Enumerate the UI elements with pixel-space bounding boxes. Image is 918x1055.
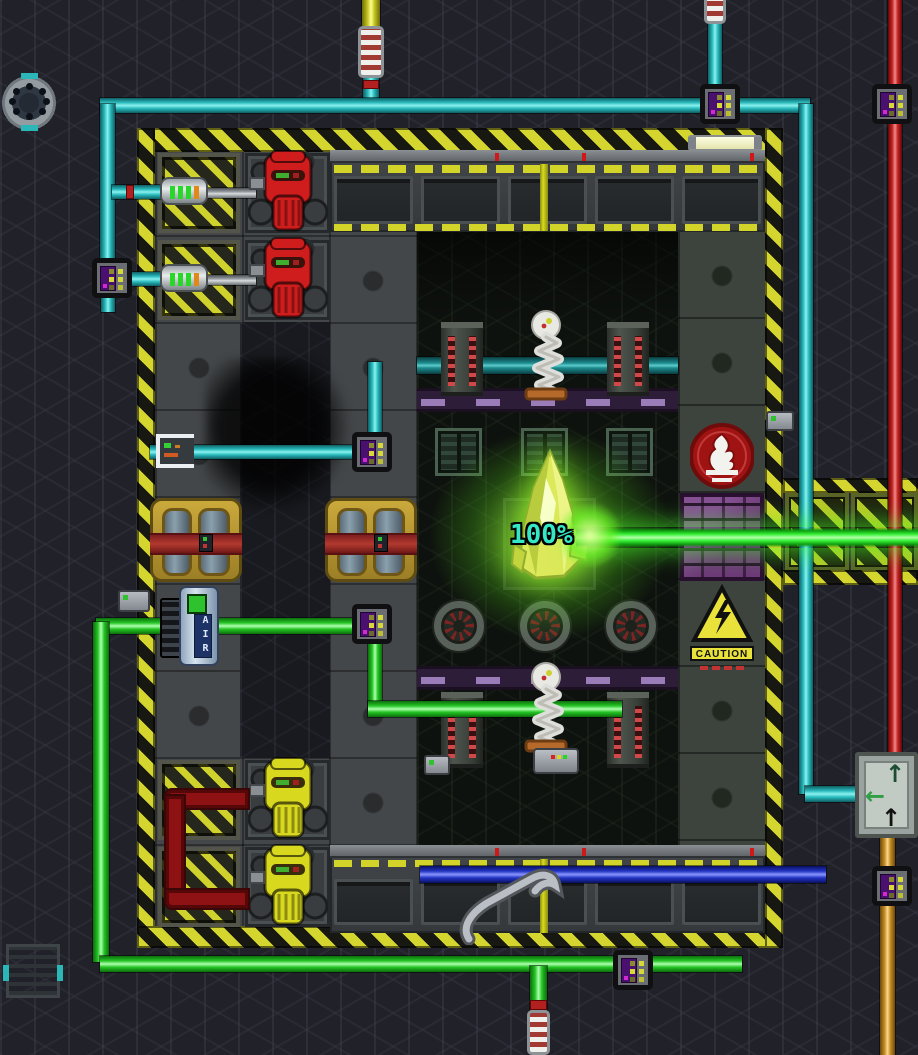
floor-grille[interactable]: [6, 944, 60, 998]
gas-injector[interactable]: [156, 434, 194, 468]
flame-hazard-sign: [690, 422, 754, 496]
wall-trim: [330, 150, 765, 163]
inline-gas-filter[interactable]: [160, 264, 208, 292]
pipe-cyan[interactable]: [101, 296, 115, 312]
pipe-dark-red[interactable]: [166, 796, 184, 902]
wall-light-red: [582, 153, 586, 161]
wall-light-red: [582, 848, 586, 856]
caution-sign-subtext: [700, 666, 744, 670]
gas-meter[interactable]: [872, 84, 912, 124]
wall-light-red: [495, 153, 499, 161]
pipe-dark-red[interactable]: [166, 890, 248, 908]
chamber-wall-top: [330, 150, 765, 232]
wall-panel: [682, 879, 761, 925]
crowbar[interactable]: [455, 855, 565, 945]
gas-meter[interactable]: [613, 950, 653, 990]
portable-pump-yellow[interactable]: [248, 844, 328, 928]
grounding-rod[interactable]: [518, 310, 574, 402]
tesla-coil[interactable]: [607, 322, 649, 396]
space-floor: CAUTION 100%: [0, 0, 918, 1055]
wall-light-red: [750, 153, 754, 161]
canister-label: AIR: [194, 614, 212, 658]
wall-light-red: [750, 848, 754, 856]
caution-sign-label: CAUTION: [690, 646, 754, 661]
pipe-connector[interactable]: [704, 0, 726, 24]
arrow-up-icon: ↑: [881, 806, 901, 830]
wall-panel: [334, 176, 413, 224]
grounding-rod[interactable]: [518, 662, 574, 754]
wall-panel: [682, 176, 761, 224]
wall-light-fixture: [688, 135, 762, 151]
gas-meter[interactable]: [872, 866, 912, 906]
circular-vent[interactable]: [2, 74, 56, 132]
pipe-connector[interactable]: [358, 26, 384, 78]
canister-light: [187, 594, 207, 614]
teg-circulator[interactable]: [150, 498, 242, 582]
status-lights: [551, 755, 555, 759]
pipe-cyan-branch[interactable]: [130, 272, 160, 286]
wall-panel: [595, 879, 674, 925]
pipe-cyan[interactable]: [368, 362, 382, 436]
pipe-valve-band: [530, 1000, 547, 1010]
gas-pipe-green-chamber[interactable]: [368, 701, 622, 717]
dropped-tool[interactable]: [424, 755, 450, 775]
dropped-tool[interactable]: [766, 411, 794, 431]
wall-connector-device[interactable]: [118, 590, 150, 612]
pipe-green-drop[interactable]: [93, 622, 109, 962]
gas-meter[interactable]: [352, 604, 392, 644]
pipe-cyan-right[interactable]: [799, 104, 813, 794]
portable-scrubber-red[interactable]: [248, 237, 328, 321]
circulator-band: [325, 533, 417, 555]
wall-panel: [334, 879, 413, 925]
portable-scrubber-red[interactable]: [248, 150, 328, 234]
floor-shadow: [205, 358, 350, 513]
air-canister[interactable]: AIR: [179, 586, 219, 666]
hazard-band-top: [137, 128, 783, 152]
tesla-coil[interactable]: [441, 322, 483, 396]
pipe-valve-band: [126, 185, 134, 199]
pipe-cyan[interactable]: [708, 20, 722, 92]
gas-pipe-green-riser[interactable]: [368, 642, 382, 710]
electrical-caution-sign: [688, 584, 756, 646]
pipe-valve-band: [363, 80, 379, 89]
teg-circulator[interactable]: [325, 498, 417, 582]
arrow-up-icon: ↑: [885, 762, 905, 786]
pipe-junction-sign[interactable]: ↑ ← ↑: [855, 752, 918, 838]
gas-meter[interactable]: [92, 258, 132, 298]
wall-panel: [421, 176, 500, 224]
circulator-lights: [199, 534, 213, 552]
circulator-band: [150, 533, 242, 555]
gas-meter[interactable]: [352, 432, 392, 472]
caution-text: CAUTION: [696, 649, 749, 660]
wall-yellow-stripe: [540, 164, 548, 231]
wall-panel: [595, 176, 674, 224]
integrity-readout: 100%: [510, 520, 573, 550]
pipe-connector[interactable]: [527, 1010, 550, 1055]
inline-gas-filter[interactable]: [160, 177, 208, 205]
portable-pump-yellow[interactable]: [248, 757, 328, 841]
circulator-lights: [374, 534, 388, 552]
gas-meter[interactable]: [700, 84, 740, 124]
rod-base-machine[interactable]: [533, 748, 579, 774]
pipe-cyan-branch[interactable]: [112, 185, 160, 199]
pipe-green-air-line[interactable]: [96, 618, 356, 634]
